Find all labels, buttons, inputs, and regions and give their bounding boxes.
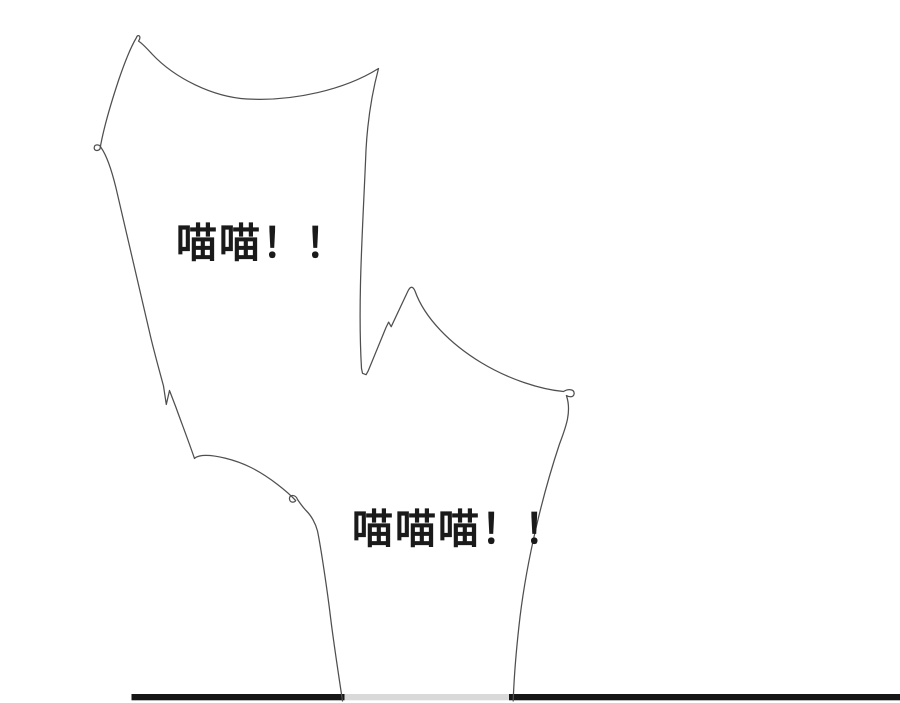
ground-line-right [509,694,900,700]
bubble-fill [94,36,574,701]
shout-bubble-top-text: 喵喵！！ [176,222,348,265]
speech-bubbles-graphic [0,0,900,703]
shout-bubble-bottom-text: 喵喵喵！！ [352,508,567,551]
ground-line-left [132,694,345,700]
comic-panel: 喵喵！！ 喵喵喵！！ [0,0,900,703]
ground-line-behind-bubble [345,694,510,700]
